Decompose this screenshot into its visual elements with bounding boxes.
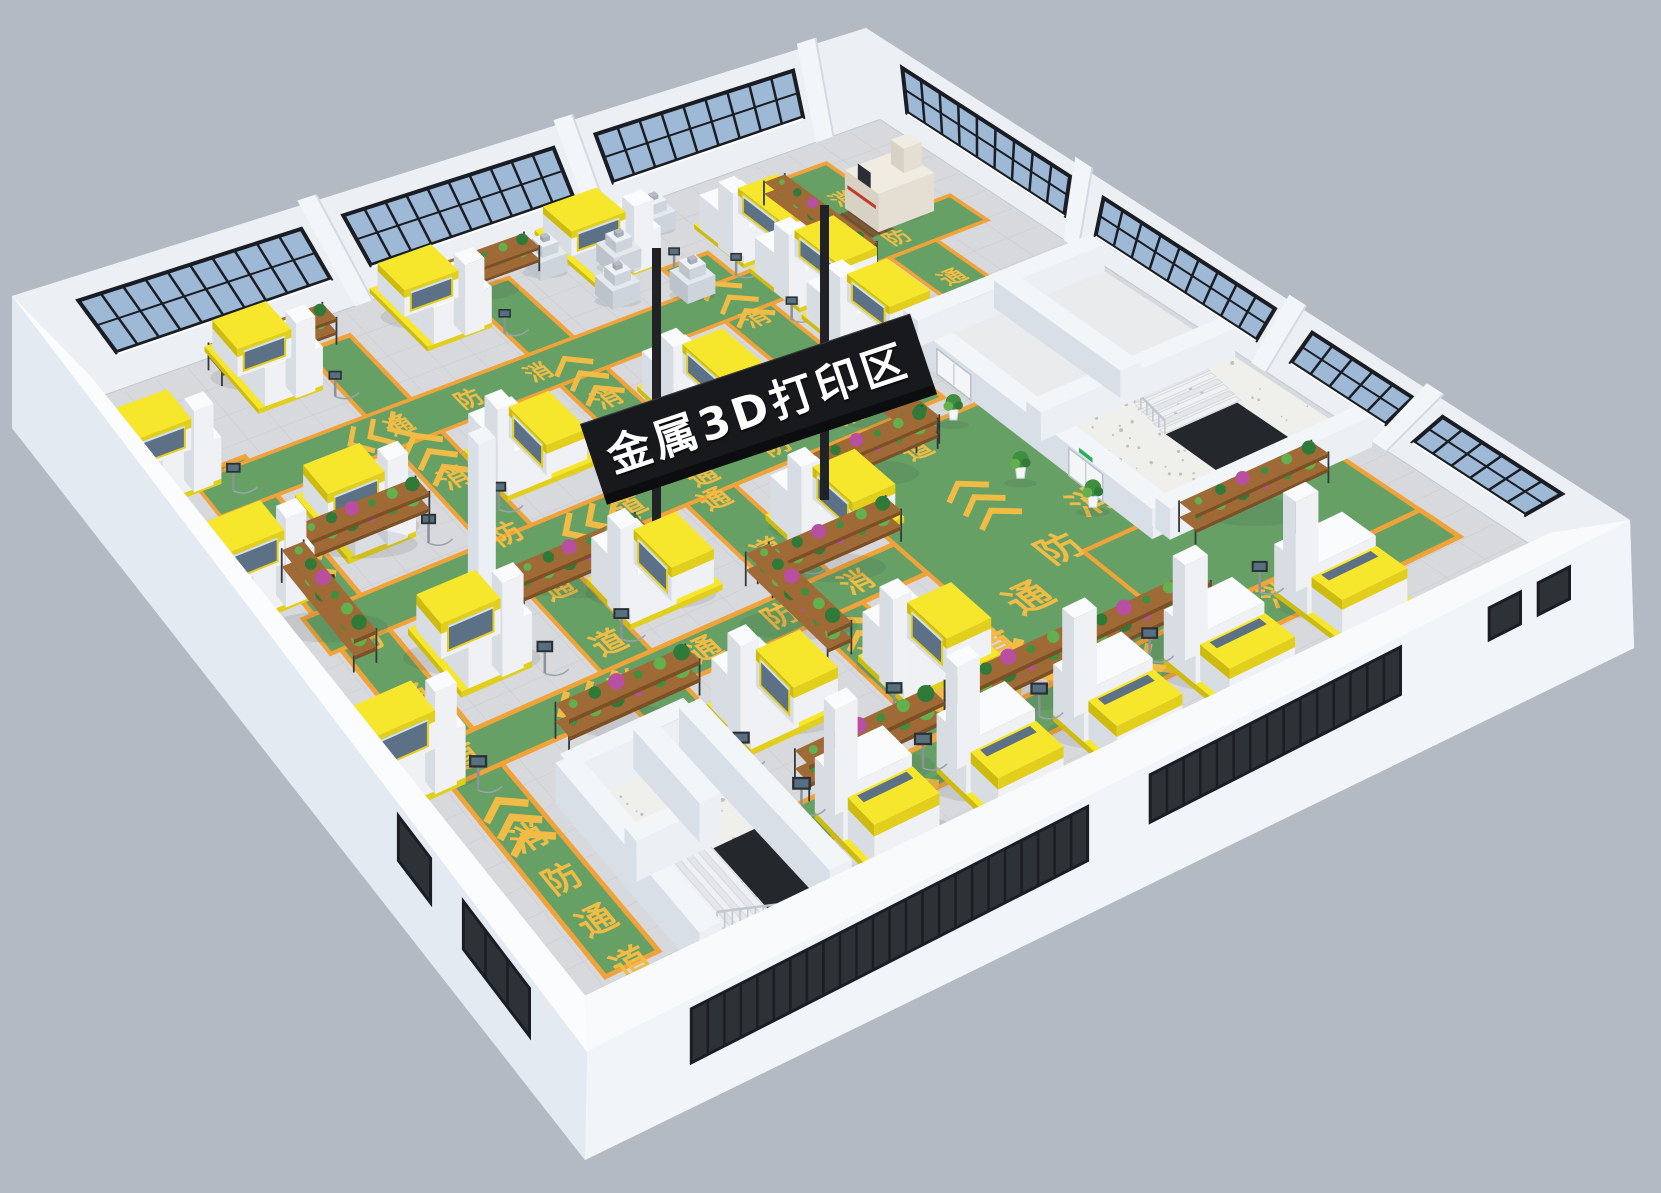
metal-3d-print-zone-rendering: 消防通道消防通道消防通道消防通道通道消防通道消防通消防通道消防通道消防通消防通道… <box>0 0 1661 1193</box>
support-column <box>462 426 502 593</box>
factory-scene-svg: 消防通道消防通道消防通道消防通道通道消防通道消防通消防通道消防通道消防通消防通道… <box>0 0 1661 1193</box>
